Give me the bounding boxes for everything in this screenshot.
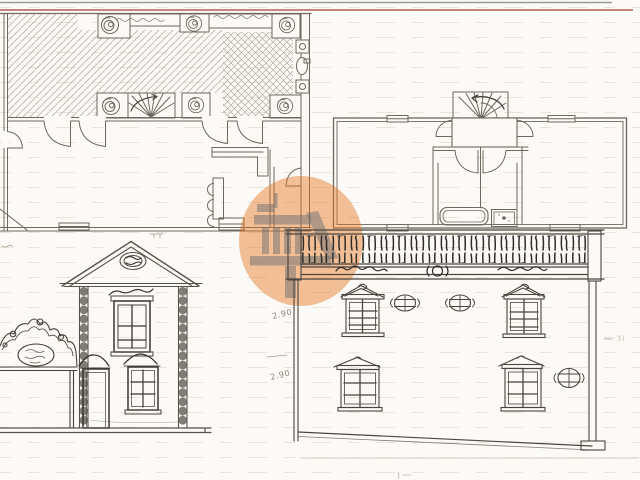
architectural-sketch-svg: 2.90 2.90 3)	[0, 0, 640, 480]
sketch-sheet: 2.90 2.90 3)	[0, 0, 640, 480]
dimension-label-3: 3)	[616, 334, 625, 343]
